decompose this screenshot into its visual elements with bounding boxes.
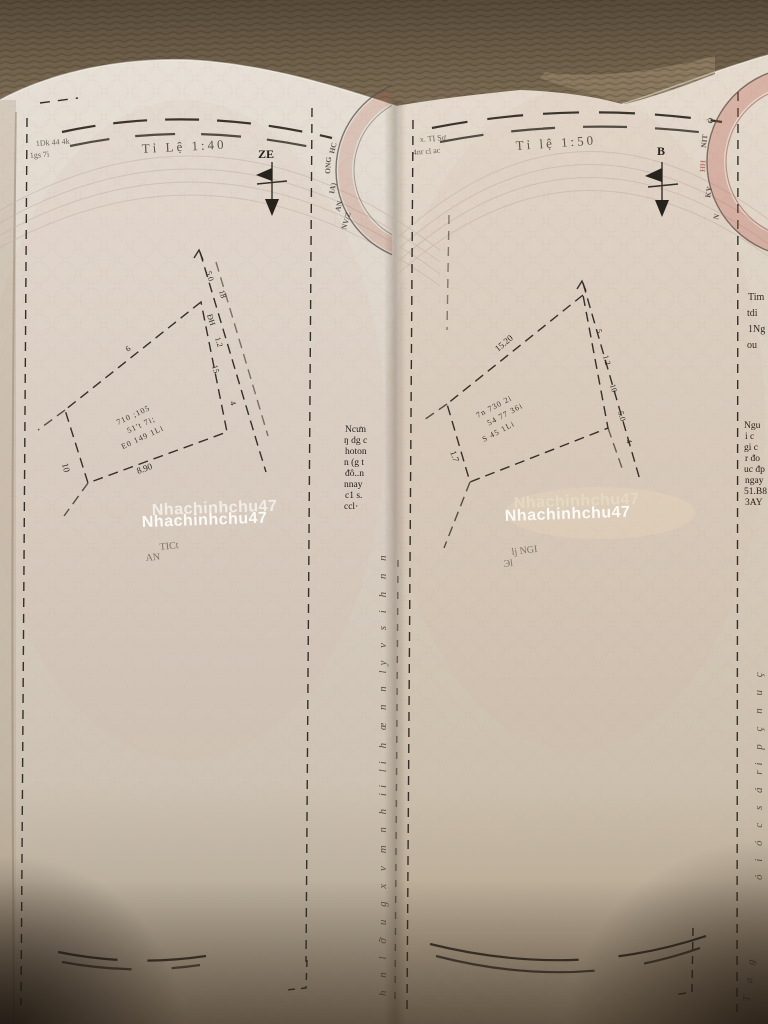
- bottom-left-vignette: [0, 850, 300, 1024]
- left-stamp-letters: ONG: [323, 156, 333, 174]
- left-corner-note-line2: 1gs 7i: [30, 150, 51, 160]
- left-fold-text-line: ŋ dg c: [344, 436, 367, 446]
- edge-partial-word: 1Ng: [748, 324, 765, 335]
- bottom-right-vignette: [480, 840, 768, 1024]
- right-watermark-sub2: Эl: [503, 558, 514, 570]
- left-fold-text-line: nnay: [344, 480, 363, 490]
- left-fold-text-line: hoton: [345, 447, 367, 457]
- left-watermark-sub2: AN: [145, 552, 161, 564]
- paper-pink-tint-left: [0, 100, 385, 760]
- scene-svg: 1Dk 44 4k 1gs 7i Tỉ Lệ 1:40 ZE HC ONG IA…: [0, 0, 768, 1024]
- left-fold-text-line: n (g t: [344, 457, 364, 468]
- right-edge-text-line: Ngu: [744, 421, 761, 431]
- right-edge-text-line: uc đp: [744, 465, 765, 475]
- left-fold-text-line: Ncưn: [345, 425, 366, 435]
- right-edge-text-line: 51.B8: [744, 487, 767, 497]
- edge-partial-word: tdi: [747, 308, 758, 319]
- left-fold-text-line: c1 s.: [345, 491, 362, 501]
- right-stamp-letters: NIT: [699, 134, 709, 148]
- photo-of-land-certificate: 1Dk 44 4k 1gs 7i Tỉ Lệ 1:40 ZE HC ONG IA…: [0, 0, 768, 1024]
- left-north-label: ZE: [258, 147, 274, 161]
- left-fold-text-line: ccl·: [344, 502, 358, 512]
- right-edge-text-line: ngay: [745, 476, 764, 486]
- right-edge-text-line: r đo: [745, 454, 760, 464]
- right-north-label: B: [657, 144, 665, 158]
- right-stamp-letters: HH: [698, 160, 707, 172]
- left-watermark-sub1: TICt: [159, 540, 179, 553]
- left-fold-text-line: đô..n: [345, 469, 364, 479]
- edge-partial-word: ou: [747, 340, 757, 351]
- right-edge-text-line: i c: [745, 432, 754, 442]
- right-edge-text-line: 3AY: [745, 498, 763, 508]
- right-edge-text-line: gi c: [744, 443, 758, 453]
- edge-partial-word: Tim: [748, 292, 765, 303]
